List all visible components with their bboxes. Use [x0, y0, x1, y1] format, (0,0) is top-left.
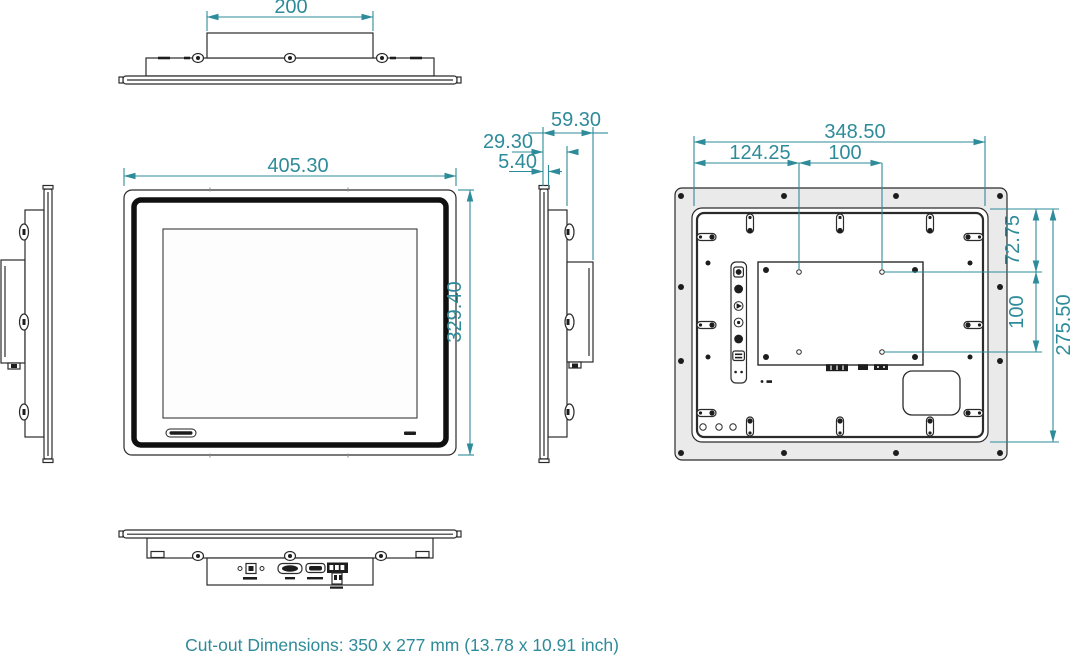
dim-front-width-label: 405.30	[267, 155, 328, 177]
osd-button-strip	[731, 262, 747, 383]
dim-vesa-offset-y-label: 72.75	[1002, 215, 1024, 265]
dim-front-height-label: 329.40	[444, 281, 466, 342]
left-side-view	[1, 186, 53, 463]
dim-rear-body-width-label: 348.50	[824, 121, 885, 143]
dim-vesa-pitch-x-label: 100	[828, 142, 861, 164]
vesa-hole	[880, 270, 885, 275]
drawing-canvas: 200 405.30 329.40	[0, 0, 1080, 660]
dot-icon	[737, 321, 740, 324]
vesa-hole	[797, 270, 802, 275]
rear-label-recess	[903, 371, 960, 415]
monitor-dimension-drawing: 200 405.30 329.40	[0, 0, 1080, 660]
cutout-dimensions-note: Cut-out Dimensions: 350 x 277 mm (13.78 …	[185, 635, 619, 655]
rear-view: 348.50 124.25 100 72.75 100 275.50	[675, 121, 1075, 460]
vga-label-mark	[285, 577, 295, 579]
dc-in-label-mark	[243, 577, 257, 580]
vesa-hole	[797, 350, 802, 355]
dim-side-bezel-thickness-label: 5.40	[498, 151, 537, 173]
osd-dark-button-2	[734, 335, 743, 344]
dim-side-body-depth-label: 29.30	[483, 131, 533, 153]
osd-dark-button-1	[734, 285, 743, 294]
dim-vesa-pitch-y-label: 100	[1006, 295, 1028, 328]
dimension-top-mount-width: 200	[207, 0, 373, 31]
dim-top-mount-width-label: 200	[274, 0, 307, 18]
top-view: 200	[119, 0, 461, 84]
side-view: 59.30 29.30 5.40	[483, 109, 608, 463]
dim-vesa-offset-x-label: 124.25	[729, 142, 790, 164]
dimension-front-width: 405.30	[124, 155, 456, 186]
brand-logo	[166, 429, 196, 437]
front-view: 405.30 329.40	[124, 155, 474, 458]
terminal-label-mark	[330, 587, 343, 589]
vesa-hole	[880, 350, 885, 355]
osd-select-button	[734, 318, 743, 327]
power-led	[404, 432, 416, 436]
front-screen	[163, 229, 417, 418]
vesa-mount-plate	[758, 262, 923, 371]
dimension-side-bezel-thickness: 5.40	[498, 151, 562, 186]
hdmi-label-mark	[307, 577, 323, 579]
rear-vent-holes	[700, 424, 736, 430]
dim-side-total-depth-label: 59.30	[551, 109, 601, 131]
bottom-view	[119, 530, 461, 589]
side-body	[548, 210, 567, 437]
osd-right-button	[734, 302, 743, 311]
dim-rear-body-height-label: 275.50	[1053, 294, 1075, 355]
